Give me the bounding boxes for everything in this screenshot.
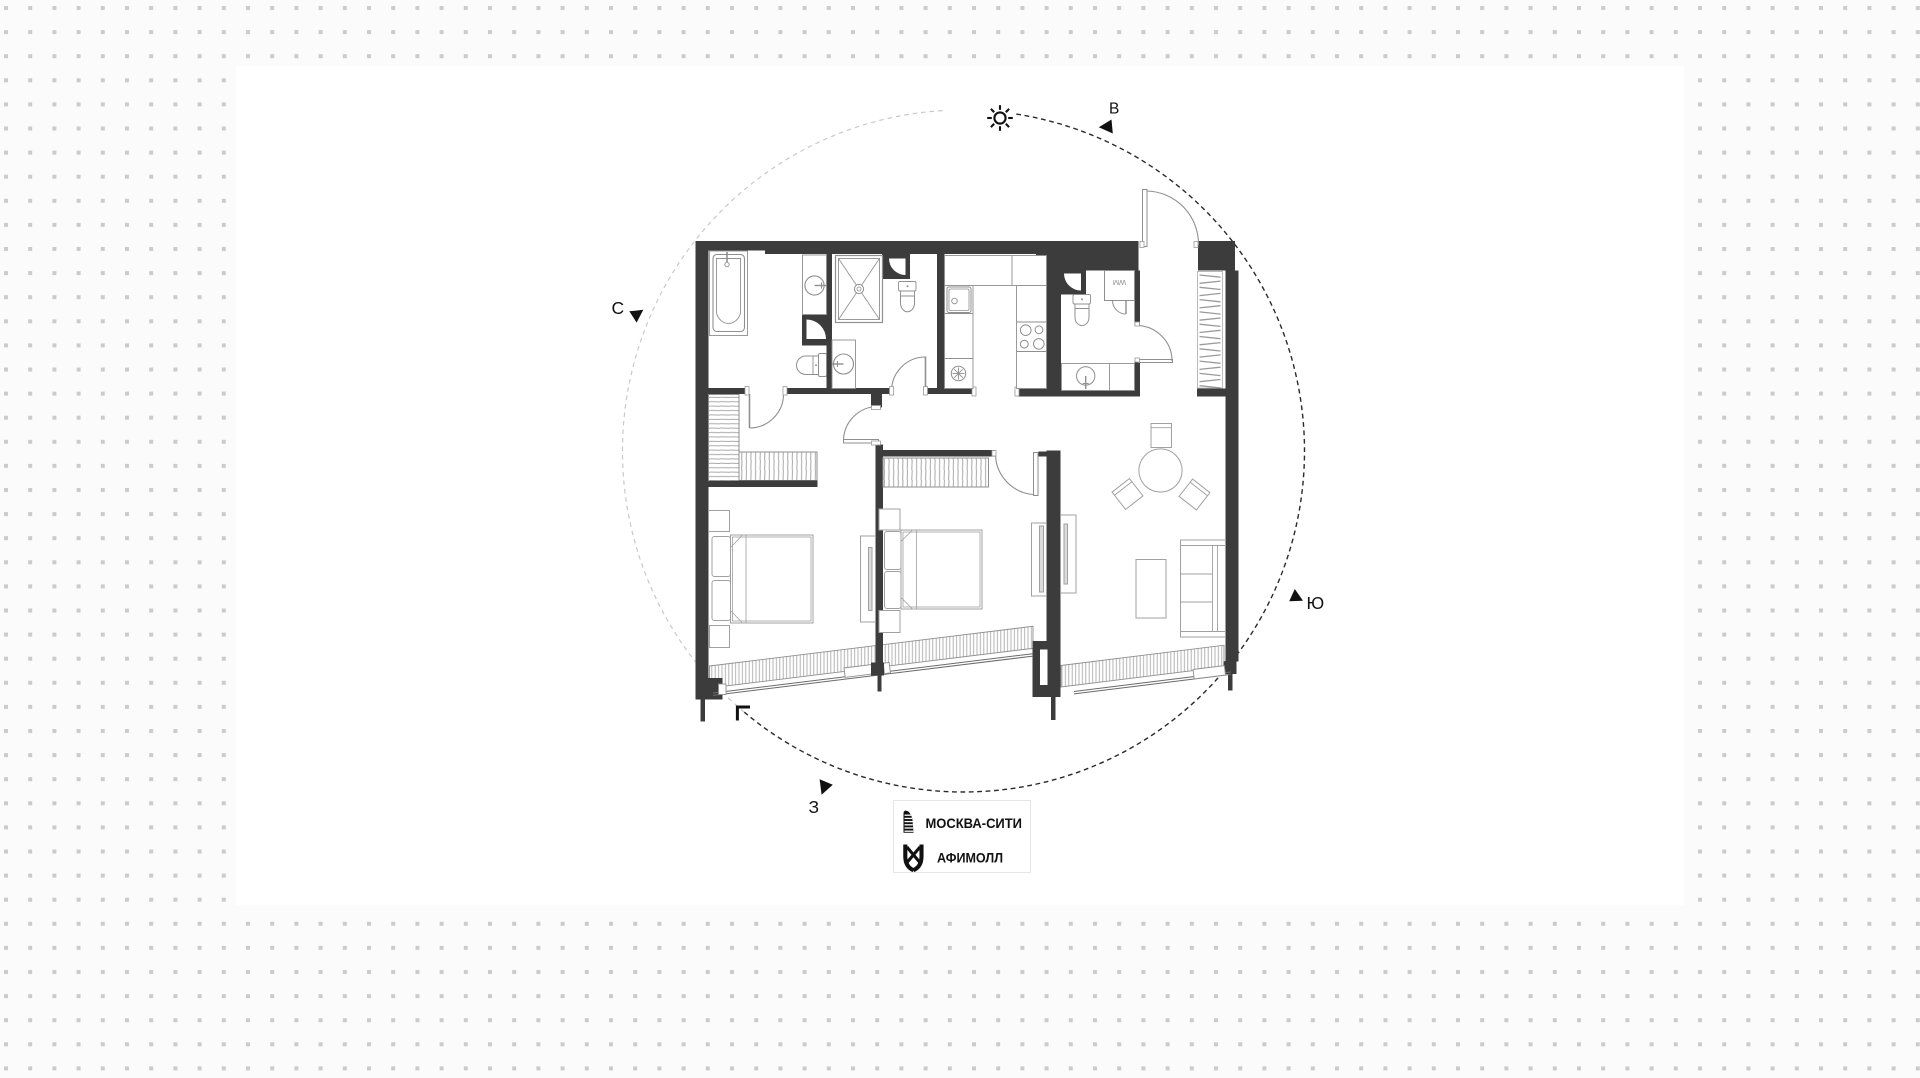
svg-text:Ю: Ю: [1307, 593, 1325, 613]
svg-text:В: В: [1109, 101, 1119, 118]
svg-text:З: З: [809, 797, 820, 817]
svg-text:МОСКВА-СИТИ: МОСКВА-СИТИ: [926, 816, 1023, 831]
svg-text:АФИМОЛЛ: АФИМОЛЛ: [937, 851, 1003, 866]
svg-text:С: С: [612, 298, 625, 318]
svg-text:WM: WM: [1113, 278, 1126, 287]
